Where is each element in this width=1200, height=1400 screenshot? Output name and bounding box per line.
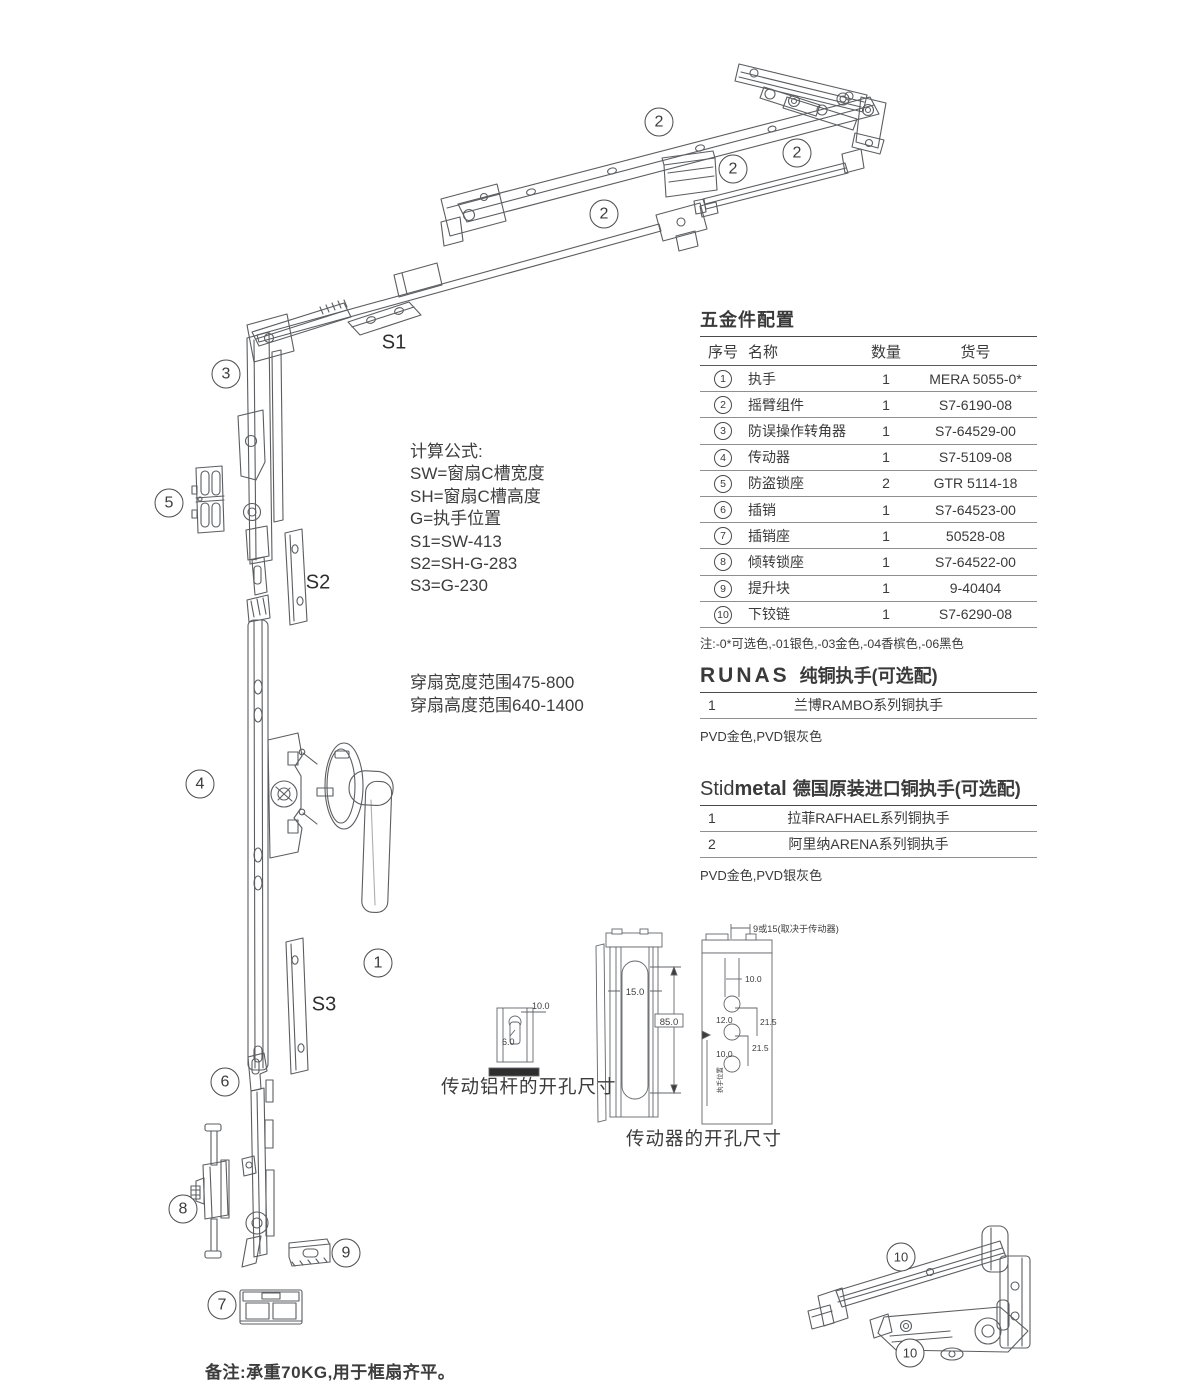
quantity-cell: 1 bbox=[858, 397, 914, 413]
part-name-cell: 传动器 bbox=[746, 447, 858, 467]
row-number-cell: 2 bbox=[700, 395, 746, 414]
s2-plate-art bbox=[285, 529, 307, 625]
row-number-cell: 4 bbox=[700, 448, 746, 467]
quantity-cell: 1 bbox=[858, 423, 914, 439]
callout-9: 9 bbox=[332, 1239, 361, 1268]
runas-header: RUNAS 纯铜执手(可选配) bbox=[700, 662, 1037, 693]
quantity-cell: 1 bbox=[858, 528, 914, 544]
formula-title: 计算公式: bbox=[410, 441, 545, 463]
brand-row-number: 2 bbox=[708, 832, 716, 857]
circled-number: 2 bbox=[714, 396, 732, 414]
table-row: 2摇臂组件1S7-6190-08 bbox=[700, 392, 1037, 418]
circled-number: 6 bbox=[714, 501, 732, 519]
callout-10: 10 bbox=[896, 1339, 925, 1368]
part-name-cell: 下铰链 bbox=[746, 604, 858, 624]
part-name-cell: 插销座 bbox=[746, 526, 858, 546]
stay-arm-assembly-art bbox=[257, 64, 886, 342]
stidmetal-header: Stid metal 德国原装进口铜执手(可选配) bbox=[700, 775, 1037, 806]
part-name-cell: 防盗锁座 bbox=[746, 473, 858, 493]
formula-line: G=执手位置 bbox=[410, 508, 545, 530]
hardware-table: 五金件配置 序号名称数量货号 1执手1MERA 5055-0*2摇臂组件1S7-… bbox=[700, 306, 1037, 652]
callout-10: 10 bbox=[887, 1243, 916, 1272]
runas-rows: 1兰博RAMBO系列铜执手 bbox=[700, 693, 1037, 719]
row-number-cell: 9 bbox=[700, 579, 746, 598]
s3-plate-art bbox=[286, 938, 308, 1074]
row-number-cell: 5 bbox=[700, 474, 746, 493]
table-row: 5防盗锁座2GTR 5114-18 bbox=[700, 471, 1037, 497]
quantity-cell: 1 bbox=[858, 502, 914, 518]
quantity-cell: 1 bbox=[858, 371, 914, 387]
formula-line: S2=SH-G-283 bbox=[410, 553, 545, 575]
quantity-cell: 1 bbox=[858, 606, 914, 622]
row-number-cell: 8 bbox=[700, 552, 746, 571]
footer-note: 备注:承重70KG,用于框扇齐平。 bbox=[205, 1358, 455, 1383]
circled-number: 8 bbox=[714, 553, 732, 571]
formula-line: SW=窗扇C槽宽度 bbox=[410, 463, 545, 485]
hole-dim-4: 10.0 bbox=[716, 1049, 733, 1059]
quantity-cell: 1 bbox=[858, 554, 914, 570]
top-dim-label: 9或15(取决于传动器) bbox=[753, 923, 839, 934]
driver-drawing-caption: 传动器的开孔尺寸 bbox=[626, 1125, 782, 1151]
table-row: 4传动器1S7-5109-08 bbox=[700, 445, 1037, 471]
callout-7: 7 bbox=[208, 1291, 237, 1320]
range-line: 穿扇高度范围640-1400 bbox=[410, 694, 584, 717]
row-number-cell: 3 bbox=[700, 421, 746, 440]
part-name-cell: 提升块 bbox=[746, 578, 858, 598]
size-label-s1: S1 bbox=[382, 332, 406, 355]
rod-slot-dim: 6.0 bbox=[502, 1037, 515, 1047]
exploded-diagram-page: 10.0 6.0 15.0 85.0 bbox=[0, 0, 1200, 1400]
callout-3: 3 bbox=[212, 360, 241, 389]
callout-2: 2 bbox=[719, 155, 748, 184]
runas-note: PVD金色,PVD银灰色 bbox=[700, 719, 1037, 745]
runas-logo: RUNAS bbox=[700, 664, 790, 688]
hardware-table-header: 序号名称数量货号 bbox=[700, 337, 1037, 366]
brand-table-row: 1兰博RAMBO系列铜执手 bbox=[700, 693, 1037, 719]
circled-number: 9 bbox=[714, 580, 732, 598]
callout-1: 1 bbox=[364, 949, 393, 978]
formula-line: S1=SW-413 bbox=[410, 531, 545, 553]
bottom-hinge-art bbox=[808, 1226, 1030, 1360]
corner-drive-art bbox=[238, 300, 351, 595]
column-header: 名称 bbox=[746, 341, 858, 362]
part-code-cell: GTR 5114-18 bbox=[914, 475, 1037, 491]
brand-table-row: 1拉菲RAFHAEL系列铜执手 bbox=[700, 806, 1037, 832]
stidmetal-logo-light: Stid bbox=[700, 778, 734, 801]
circled-number: 7 bbox=[714, 527, 732, 545]
hole-dim-3: 21.5 bbox=[760, 1017, 777, 1027]
stidmetal-section: Stid metal 德国原装进口铜执手(可选配) 1拉菲RAFHAEL系列铜执… bbox=[700, 775, 1037, 884]
anti-theft-keeper-art bbox=[192, 466, 224, 533]
stidmetal-rows: 1拉菲RAFHAEL系列铜执手2阿里纳ARENA系列铜执手 bbox=[700, 806, 1037, 858]
hole-dim-5: 21.5 bbox=[752, 1043, 769, 1053]
rod-width-dim: 10.0 bbox=[532, 1001, 550, 1011]
table-row: 8倾转锁座1S7-64522-00 bbox=[700, 549, 1037, 575]
part-code-cell: S7-6290-08 bbox=[914, 606, 1037, 622]
lift-block-art bbox=[289, 1239, 330, 1266]
callout-2: 2 bbox=[783, 139, 812, 168]
rod-drawing-caption: 传动铝杆的开孔尺寸 bbox=[441, 1073, 617, 1099]
rod-hole-drawing: 10.0 6.0 bbox=[489, 1001, 550, 1076]
driver-hole-drawing: 10.0 12.0 21.5 10.0 21.5 9或15(取决于传动器) 执手… bbox=[702, 923, 839, 1124]
part-code-cell: S7-64522-00 bbox=[914, 554, 1037, 570]
quantity-cell: 2 bbox=[858, 475, 914, 491]
callout-8: 8 bbox=[169, 1195, 198, 1224]
part-code-cell: S7-6190-08 bbox=[914, 397, 1037, 413]
tilt-keeper-art bbox=[191, 1124, 229, 1258]
column-header: 序号 bbox=[700, 341, 746, 362]
part-code-cell: MERA 5055-0* bbox=[914, 371, 1037, 387]
quantity-cell: 1 bbox=[858, 580, 914, 596]
part-code-cell: S7-64523-00 bbox=[914, 502, 1037, 518]
table-row: 10下铰链1S7-6290-08 bbox=[700, 602, 1037, 628]
range-block: 穿扇宽度范围475-800穿扇高度范围640-1400 bbox=[410, 671, 584, 717]
callout-2: 2 bbox=[645, 108, 674, 137]
circled-number: 5 bbox=[714, 475, 732, 493]
part-code-cell: 50528-08 bbox=[914, 528, 1037, 544]
circled-number: 3 bbox=[714, 422, 732, 440]
row-number-cell: 1 bbox=[700, 369, 746, 388]
row-number-cell: 7 bbox=[700, 526, 746, 545]
callout-5: 5 bbox=[155, 489, 184, 518]
part-name-cell: 摇臂组件 bbox=[746, 395, 858, 415]
table-row: 7插销座150528-08 bbox=[700, 523, 1037, 549]
runas-title: 纯铜执手(可选配) bbox=[800, 662, 938, 688]
espagnolette-art bbox=[242, 1053, 274, 1267]
formula-line: S3=G-230 bbox=[410, 575, 545, 597]
brand-row-name: 兰博RAMBO系列铜执手 bbox=[700, 693, 1037, 718]
hole-dim-2: 12.0 bbox=[716, 1015, 733, 1025]
brand-row-name: 拉菲RAFHAEL系列铜执手 bbox=[700, 806, 1037, 831]
part-code-cell: S7-64529-00 bbox=[914, 423, 1037, 439]
stidmetal-logo-bold: metal bbox=[734, 778, 786, 801]
formula-line: SH=窗扇C槽高度 bbox=[410, 486, 545, 508]
handle-art bbox=[317, 743, 394, 913]
slot-width-dim: 15.0 bbox=[626, 987, 645, 998]
brand-row-number: 1 bbox=[708, 693, 716, 718]
callout-4: 4 bbox=[186, 770, 215, 799]
hole-dim-1: 10.0 bbox=[745, 974, 762, 984]
hardware-table-note: 注:-0*可选色,-01银色,-03金色,-04香槟色,-06黑色 bbox=[700, 628, 1037, 652]
stidmetal-title: 德国原装进口铜执手(可选配) bbox=[793, 775, 1021, 801]
part-name-cell: 执手 bbox=[746, 369, 858, 389]
part-name-cell: 倾转锁座 bbox=[746, 552, 858, 572]
part-code-cell: 9-40404 bbox=[914, 580, 1037, 596]
quantity-cell: 1 bbox=[858, 449, 914, 465]
row-number-cell: 6 bbox=[700, 500, 746, 519]
brand-row-number: 1 bbox=[708, 806, 716, 831]
row-number-cell: 10 bbox=[700, 605, 746, 624]
part-name-cell: 插销 bbox=[746, 500, 858, 520]
circled-number: 1 bbox=[714, 370, 732, 388]
range-line: 穿扇宽度范围475-800 bbox=[410, 671, 584, 694]
callout-6: 6 bbox=[211, 1068, 240, 1097]
brand-row-name: 阿里纳ARENA系列铜执手 bbox=[700, 832, 1037, 857]
column-header: 数量 bbox=[858, 341, 914, 362]
circled-number: 4 bbox=[714, 449, 732, 467]
circled-number: 10 bbox=[714, 606, 732, 624]
table-row: 9提升块19-40404 bbox=[700, 576, 1037, 602]
side-note-label: 执手位置 bbox=[715, 1067, 724, 1094]
size-label-s2: S2 bbox=[306, 572, 330, 595]
gear-drive-art bbox=[247, 595, 317, 1070]
part-code-cell: S7-5109-08 bbox=[914, 449, 1037, 465]
latch-keeper-art bbox=[240, 1290, 302, 1324]
slot-height-dim: 85.0 bbox=[660, 1017, 679, 1028]
brand-table-row: 2阿里纳ARENA系列铜执手 bbox=[700, 832, 1037, 858]
table-row: 1执手1MERA 5055-0* bbox=[700, 366, 1037, 392]
hardware-table-body: 1执手1MERA 5055-0*2摇臂组件1S7-6190-083防误操作转角器… bbox=[700, 366, 1037, 628]
table-row: 3防误操作转角器1S7-64529-00 bbox=[700, 418, 1037, 444]
hardware-table-title: 五金件配置 bbox=[700, 306, 1037, 337]
callout-2: 2 bbox=[590, 200, 619, 229]
table-row: 6插销1S7-64523-00 bbox=[700, 497, 1037, 523]
stidmetal-note: PVD金色,PVD银灰色 bbox=[700, 858, 1037, 884]
part-name-cell: 防误操作转角器 bbox=[746, 421, 858, 441]
runas-section: RUNAS 纯铜执手(可选配) 1兰博RAMBO系列铜执手 PVD金色,PVD银… bbox=[700, 662, 1037, 745]
formula-block: 计算公式:SW=窗扇C槽宽度SH=窗扇C槽高度G=执手位置S1=SW-413S2… bbox=[410, 441, 545, 598]
column-header: 货号 bbox=[914, 341, 1037, 362]
size-label-s3: S3 bbox=[312, 994, 336, 1017]
